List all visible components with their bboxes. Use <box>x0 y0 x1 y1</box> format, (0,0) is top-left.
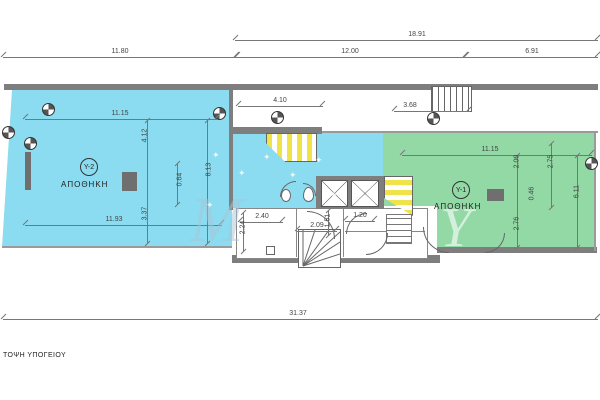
top-exterior-wall <box>4 84 598 90</box>
dim-4-12: 4.12 <box>142 123 149 149</box>
drain-symbol-7 <box>585 157 598 170</box>
dim-line-11-15-a <box>25 119 218 120</box>
watermark-star-2: ✦ <box>238 168 246 179</box>
dim-1-51: 1.51 <box>325 208 332 234</box>
dim-3-37: 3.37 <box>142 201 149 227</box>
dim-0-46: 0.46 <box>529 181 536 207</box>
drain-symbol-6 <box>427 112 440 125</box>
room-code-y2: Υ-2 <box>80 158 98 176</box>
dim-11-15-a: 11.15 <box>98 110 142 117</box>
watermark-star-5: ✦ <box>315 155 323 166</box>
dim-line-31-37 <box>3 319 598 320</box>
drain-symbol-4 <box>2 126 15 139</box>
dim-6-91: 6.91 <box>510 48 554 55</box>
room-code-y2-text: Υ-2 <box>84 164 94 171</box>
corridor-bottom-wall <box>232 127 322 134</box>
right-exterior-wall <box>594 133 596 251</box>
watermark-star-6: ✦ <box>206 200 214 211</box>
dim-2-09: 2.09 <box>295 222 339 229</box>
dim-line-11-80 <box>3 57 237 58</box>
dim-line-12-00 <box>237 57 466 58</box>
dim-12-00: 12.00 <box>328 48 372 55</box>
room-divider-1 <box>296 208 297 257</box>
column-y2 <box>122 172 137 191</box>
drawing-caption: ΤΟΨΗ ΥΠΟΓΕΙΟΥ <box>3 352 66 359</box>
dim-4-10: 4.10 <box>258 97 302 104</box>
dim-line-3-68 <box>394 111 470 112</box>
dim-11-80: 11.80 <box>98 48 142 55</box>
dim-2-40: 2.40 <box>240 213 284 220</box>
dim-2-75: 2.75 <box>548 149 555 175</box>
dim-line-4-10 <box>238 106 323 107</box>
dim-31-37: 31.37 <box>276 310 320 317</box>
dim-11-15-b: 11.15 <box>468 146 512 153</box>
room-label-y2: ΑΠΟΘΗΚΗ <box>61 180 108 189</box>
toilet-fixture <box>303 187 314 202</box>
dim-18-91: 18.91 <box>395 31 439 38</box>
drain-symbol-1 <box>42 103 55 116</box>
floor-drain-box <box>266 246 275 255</box>
watermark-letter-m: M <box>190 183 243 257</box>
watermark-star-1: ✦ <box>212 150 220 161</box>
watermark-letter-y: Y <box>440 196 471 260</box>
sink-fixture <box>281 189 291 202</box>
dim-11-93: 11.93 <box>92 216 136 223</box>
room-code-y1-text: Υ-1 <box>456 187 466 194</box>
dim-0-64: 0.64 <box>177 167 184 193</box>
dim-line-1-20 <box>345 221 375 222</box>
dim-line-18-91 <box>235 40 598 41</box>
watermark-star-7: ✦ <box>330 190 338 201</box>
floorplan-canvas: Υ-2 ΑΠΟΘΗΚΗ Υ-1 ΑΠΟΘΗΚΗ 18.91 11.80 12.0… <box>0 0 600 400</box>
watermark-star-3: ✦ <box>263 152 271 163</box>
elevator-shaft-right <box>351 180 379 207</box>
stair-top-right <box>431 86 472 112</box>
dim-3-68: 3.68 <box>388 102 432 109</box>
column-y1 <box>487 189 504 201</box>
drain-symbol-3 <box>24 137 37 150</box>
dim-line-6-91 <box>466 57 598 58</box>
dim-6-11: 6.11 <box>574 179 581 205</box>
corridor-bottom-line <box>322 131 598 133</box>
dim-2-00: 2.00 <box>514 149 521 175</box>
drain-symbol-5 <box>271 111 284 124</box>
watermark-star-4: ✦ <box>289 170 297 181</box>
dim-2-76: 2.76 <box>514 211 521 237</box>
stair-green-left-lower <box>386 214 412 244</box>
wall-pier-left <box>25 152 31 190</box>
dim-1-20: 1.20 <box>338 212 382 219</box>
dim-line-11-15-b <box>402 155 592 156</box>
